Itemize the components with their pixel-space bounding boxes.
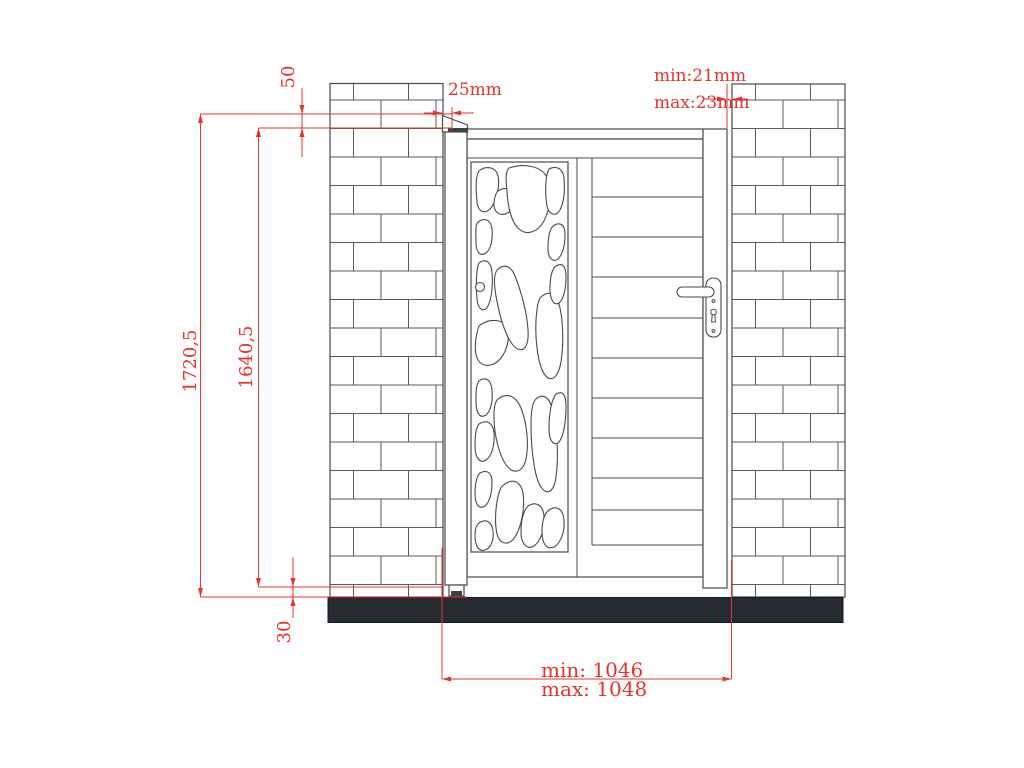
dim-gate-height: 1640,5: [236, 326, 257, 389]
drawing-canvas: 50 25mm min:21mm max:23mm 1720,5 1640,5 …: [0, 0, 1024, 768]
decorative-tree-panel: [471, 162, 568, 552]
ground-base-strip: [328, 598, 843, 623]
left-gate-post: [443, 116, 469, 597]
gate-technical-drawing: 50 25mm min:21mm max:23mm 1720,5 1640,5 …: [0, 0, 1024, 768]
left-brick-wall: [330, 84, 443, 598]
lever-handle: [677, 287, 714, 297]
dim-cap-height: 50: [278, 66, 299, 89]
dim-opening-max: max: 1048: [541, 677, 647, 701]
right-brick-wall: [732, 84, 845, 597]
right-gate-post: [703, 129, 727, 588]
dim-top-gap-max: max:23mm: [654, 93, 749, 113]
dim-ground-clearance: 30: [274, 621, 295, 644]
dim-top-gap-min: min:21mm: [654, 66, 746, 86]
dim-total-height: 1720,5: [180, 330, 201, 393]
dim-cap-overhang: 25mm: [448, 80, 502, 100]
